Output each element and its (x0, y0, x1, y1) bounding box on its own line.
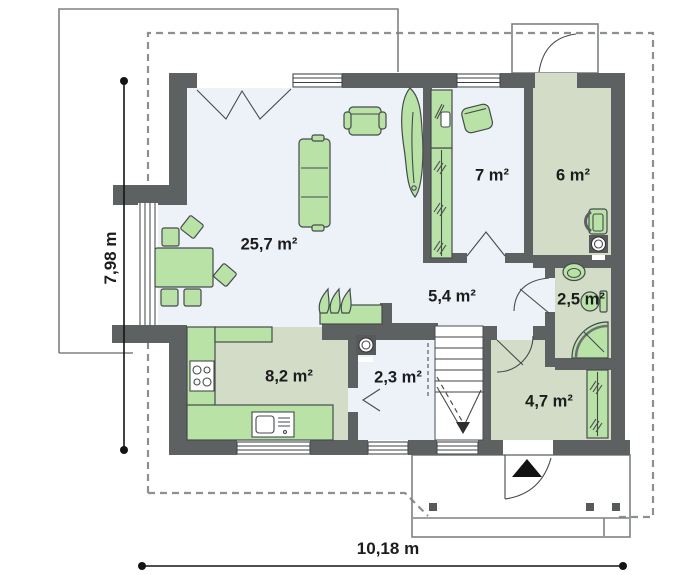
room-label-bathroom: 2,5 m² (557, 291, 605, 310)
dimension-label-width: 10,18 m (357, 539, 419, 559)
porch-post (586, 503, 594, 511)
entrance-arrow-icon (512, 459, 542, 477)
armchair-icon (344, 107, 386, 135)
porch-post (429, 503, 437, 511)
washing-machine-icon (356, 335, 376, 362)
room-label-room6: 6 m² (556, 167, 590, 186)
stove-icon (190, 361, 214, 391)
stairs-icon (435, 326, 483, 440)
dimension-label-height: 7,98 m (101, 232, 121, 285)
window-bottom-stairs (437, 442, 478, 454)
washbasin-icon (563, 264, 585, 281)
window-top-living (293, 74, 342, 87)
window-bottom-wc (368, 442, 408, 454)
door-gap-room6 (535, 73, 577, 88)
room-label-wc: 2,3 m² (374, 369, 422, 388)
window-top-room7 (457, 74, 500, 87)
desk (431, 90, 452, 148)
sofa-icon (299, 135, 330, 231)
boiler-icon (586, 209, 607, 234)
door-arc-room6 (539, 34, 576, 72)
room-label-kitchen: 8,2 m² (265, 368, 313, 387)
room-label-room7: 7 m² (475, 167, 509, 186)
dimension-horizontal (138, 562, 627, 570)
wardrobe-icon (431, 148, 452, 258)
window-bottom-kitchen (237, 442, 310, 454)
room-label-hall: 5,4 m² (428, 288, 476, 307)
room-label-entrance-hall: 4,7 m² (525, 393, 573, 412)
floor-plan-drawing (0, 0, 700, 575)
room-label-living: 25,7 m² (241, 236, 298, 255)
porch-top (512, 24, 598, 73)
porch-post (612, 503, 620, 511)
dimension-vertical (120, 77, 128, 454)
kitchen-sink-icon (252, 412, 294, 437)
floor-plan: 25,7 m² 7 m² 6 m² 5,4 m² 2,5 m² 8,2 m² 2… (0, 0, 700, 575)
wardrobe-icon (587, 370, 608, 438)
